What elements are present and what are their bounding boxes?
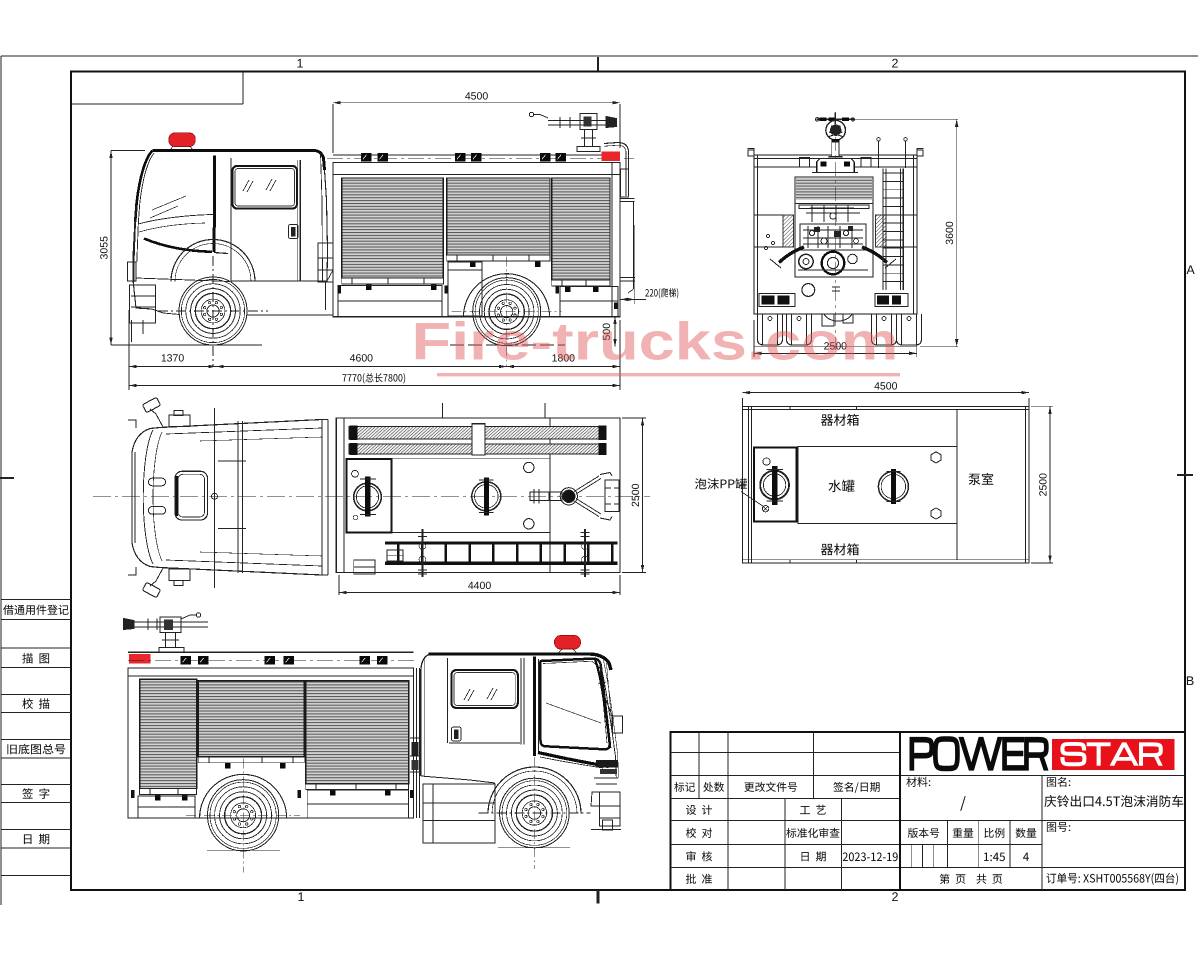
svg-text:4500: 4500	[874, 380, 898, 392]
svg-text:2: 2	[892, 57, 899, 71]
svg-text:1: 1	[297, 57, 304, 71]
svg-text:2500: 2500	[1038, 473, 1050, 497]
svg-text:1: 1	[298, 890, 305, 904]
svg-text:A: A	[1186, 263, 1195, 277]
svg-text:Fire-trucks.com: Fire-trucks.com	[412, 311, 899, 371]
svg-text:3055: 3055	[99, 236, 111, 260]
svg-text:4500: 4500	[465, 91, 489, 103]
svg-text:4600: 4600	[350, 353, 374, 365]
svg-text:2: 2	[892, 890, 899, 904]
svg-text:2500: 2500	[630, 483, 642, 507]
svg-text:4400: 4400	[468, 580, 492, 592]
svg-text:1370: 1370	[161, 353, 185, 365]
svg-text:B: B	[1186, 674, 1194, 688]
svg-text:3600: 3600	[944, 221, 956, 245]
